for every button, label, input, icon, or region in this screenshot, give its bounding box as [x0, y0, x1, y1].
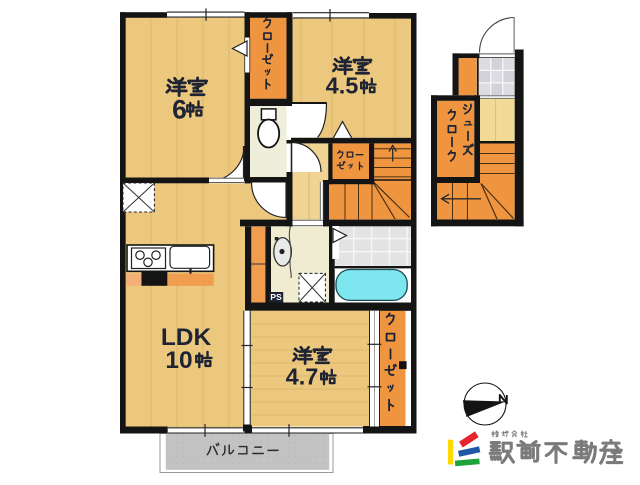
svg-text:4.7: 4.7	[286, 364, 319, 390]
svg-text:4.5: 4.5	[326, 73, 359, 99]
svg-text:10: 10	[165, 347, 192, 374]
svg-text:PS: PS	[270, 292, 282, 302]
svg-text:6: 6	[172, 95, 187, 125]
